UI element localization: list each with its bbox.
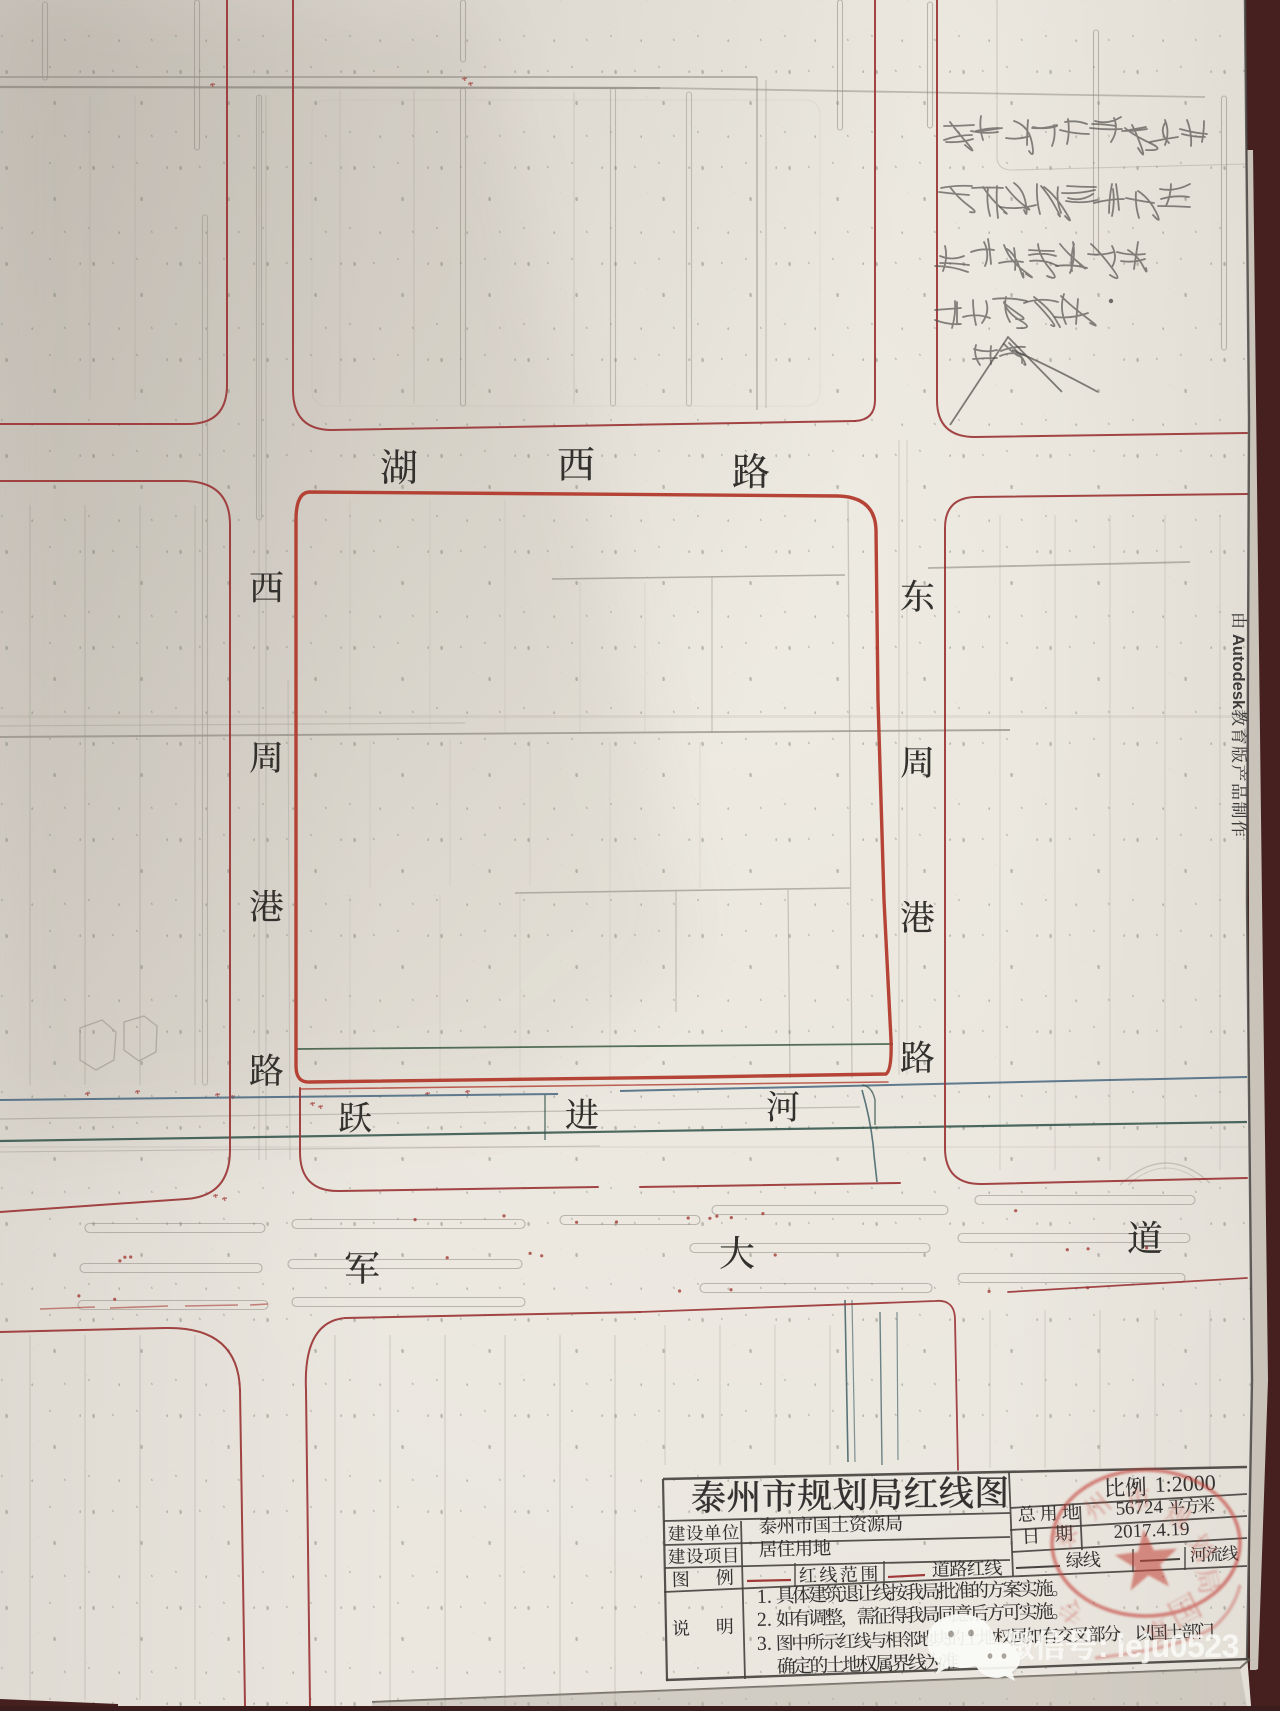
svg-text:3.: 3. [757, 1633, 773, 1655]
svg-text:1.: 1. [757, 1586, 773, 1608]
svg-text:Autodesk: Autodesk [1229, 634, 1247, 710]
svg-text:1:2000: 1:2000 [1154, 1470, 1216, 1497]
svg-text:: leju0523: : leju0523 [1098, 1628, 1239, 1664]
svg-text:2.: 2. [757, 1609, 773, 1631]
